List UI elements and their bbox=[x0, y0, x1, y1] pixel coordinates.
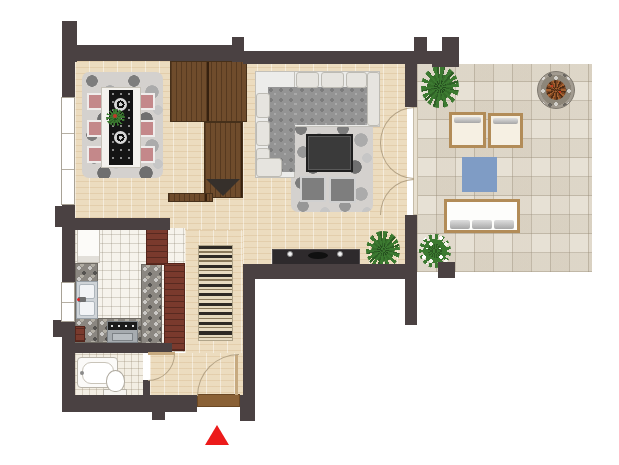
wall-bump-bottom bbox=[152, 412, 165, 420]
wardrobe bbox=[170, 61, 247, 122]
floor-plan bbox=[0, 0, 619, 465]
wall-bump-left-1 bbox=[55, 206, 62, 227]
wall-top-west bbox=[62, 45, 243, 61]
bench-cushion bbox=[494, 220, 514, 229]
wall-bottom-west bbox=[62, 395, 197, 412]
wall-right-lower bbox=[405, 215, 417, 325]
wall-left-3 bbox=[62, 322, 75, 397]
bench-cushion bbox=[472, 220, 492, 229]
sofa-side-pillow bbox=[256, 121, 270, 146]
stove-oven bbox=[107, 321, 138, 343]
sofa-back-pillow bbox=[346, 72, 367, 88]
toilet-bowl bbox=[106, 370, 125, 392]
wall-terrace-pillar bbox=[438, 262, 455, 278]
fire-pit bbox=[537, 71, 575, 109]
oven-window bbox=[112, 333, 133, 341]
centerpiece-flower bbox=[113, 114, 117, 118]
kitchen-cabinet-tall bbox=[146, 227, 168, 265]
sofa-armrest bbox=[367, 72, 380, 126]
sink-basin bbox=[79, 301, 95, 316]
outdoor-bench bbox=[444, 199, 520, 233]
sideboard-lamp bbox=[287, 251, 293, 257]
cooktop bbox=[108, 322, 137, 330]
wall-left-2 bbox=[62, 205, 75, 282]
lounge-chair-headrest bbox=[493, 118, 518, 124]
sofa-side-pillow bbox=[256, 93, 270, 118]
wall-hall-east bbox=[243, 264, 255, 414]
wall-living-bottom bbox=[243, 264, 417, 279]
sofa-back-pillow bbox=[321, 72, 344, 88]
fire-pit-core bbox=[546, 80, 566, 100]
sofa-back-pillow bbox=[296, 72, 319, 88]
wall-terrace-step-b bbox=[432, 51, 459, 67]
wall-bump-left-2 bbox=[53, 320, 62, 337]
wall-right-upper bbox=[405, 61, 417, 107]
blue-outdoor-mat bbox=[462, 157, 497, 192]
wall-terrace-step-a bbox=[442, 37, 459, 52]
wall-left-1 bbox=[62, 61, 75, 97]
entrance-marker bbox=[205, 425, 229, 445]
wall-bathroom-right bbox=[143, 380, 150, 397]
fridge bbox=[77, 229, 100, 263]
faucet-red-dot bbox=[77, 298, 80, 301]
counter-right bbox=[141, 264, 162, 347]
hallway-runner-rug bbox=[198, 245, 233, 341]
window-kitchen bbox=[61, 282, 75, 322]
bench-cushion bbox=[450, 220, 470, 229]
pouf bbox=[329, 177, 356, 203]
sideboard-lamp bbox=[337, 251, 343, 257]
coffee-table bbox=[306, 134, 353, 172]
runner-medallion bbox=[114, 131, 127, 144]
sofa-chaise-end bbox=[256, 158, 282, 177]
wall-kitchen-top bbox=[62, 218, 170, 230]
wall-pillar-right bbox=[414, 37, 427, 52]
kitchen-cabinet-small bbox=[75, 326, 85, 342]
lounge-chair bbox=[488, 113, 523, 148]
kitchen-cabinet-column bbox=[164, 263, 185, 351]
pouf bbox=[300, 176, 326, 202]
lounge-chair-headrest bbox=[454, 117, 481, 123]
sideboard-decor bbox=[308, 252, 328, 259]
terrace-palm-plant bbox=[421, 66, 459, 108]
kitchen-sink bbox=[76, 281, 98, 319]
wardrobe-accent-triangle bbox=[206, 179, 240, 196]
bathtub-faucet bbox=[80, 371, 84, 375]
lounge-chair bbox=[449, 112, 486, 148]
window-dining bbox=[61, 97, 75, 205]
